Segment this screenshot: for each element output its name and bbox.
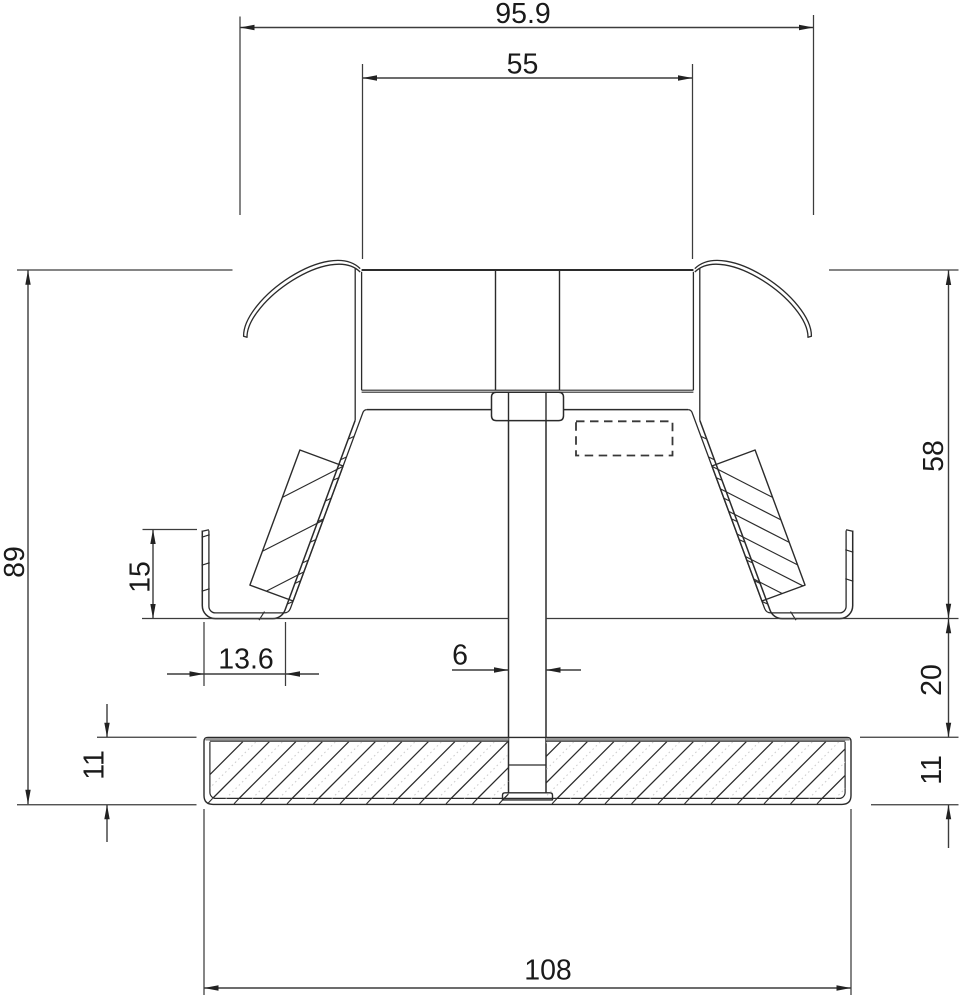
svg-text:15: 15 [125, 561, 157, 593]
svg-text:11: 11 [79, 750, 111, 780]
svg-text:58: 58 [918, 440, 950, 472]
svg-text:11: 11 [916, 755, 948, 785]
svg-text:55: 55 [507, 49, 539, 81]
svg-text:13.6: 13.6 [218, 644, 273, 676]
svg-text:20: 20 [916, 664, 948, 696]
svg-text:6: 6 [452, 640, 468, 672]
svg-text:95.9: 95.9 [495, 0, 550, 30]
svg-text:89: 89 [0, 546, 31, 578]
svg-text:108: 108 [524, 955, 572, 987]
